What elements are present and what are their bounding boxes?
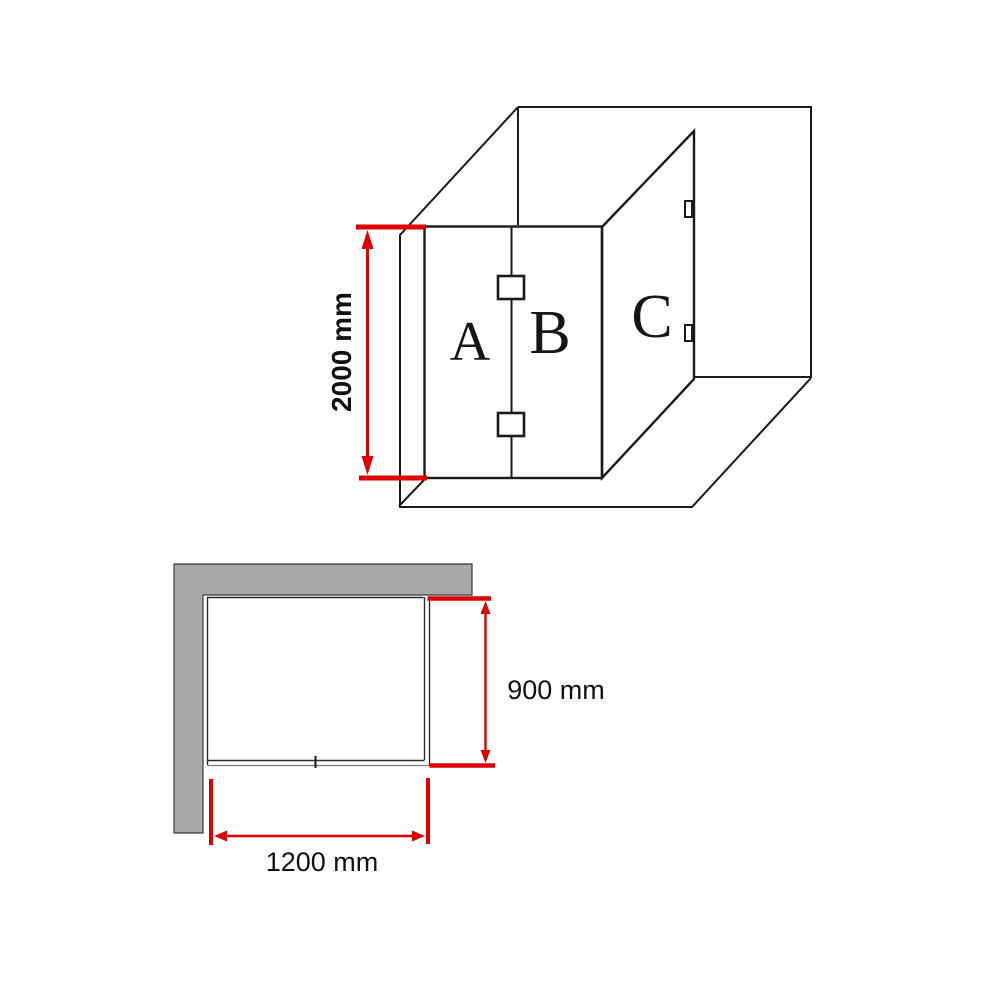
plan-glass-side-panel	[425, 597, 430, 765]
width-dimension-label: 1200 mm	[266, 847, 379, 877]
height-dimension: 2000 mm	[326, 227, 427, 478]
hinge-top	[498, 276, 524, 299]
wall-bracket-top	[685, 201, 692, 217]
depth-dimension-label: 900 mm	[507, 675, 605, 705]
arrow-up-icon	[481, 601, 491, 614]
plan-view: 900 mm 1200 mm	[174, 564, 605, 877]
shower-screen-diagram: A B C 2000 mm 900 m	[0, 0, 1000, 1000]
arrow-down-icon	[362, 456, 374, 475]
panel-label-a: A	[450, 311, 491, 373]
room-outline	[399, 107, 811, 507]
arrow-left-icon	[214, 831, 227, 842]
depth-dimension: 900 mm	[428, 599, 605, 766]
width-dimension: 1200 mm	[211, 778, 428, 877]
hinge-bottom	[498, 413, 524, 436]
arrow-down-icon	[481, 750, 491, 763]
height-dimension-label: 2000 mm	[326, 292, 357, 412]
shower-base-outline	[208, 598, 424, 766]
wall-bracket-bottom	[685, 325, 692, 341]
diagram-image: A B C 2000 mm 900 m	[0, 0, 1000, 1000]
perspective-view: A B C 2000 mm	[326, 107, 811, 507]
arrow-right-icon	[412, 831, 425, 842]
panel-label-c: C	[631, 283, 672, 351]
panel-label-b: B	[529, 299, 570, 367]
arrow-up-icon	[362, 230, 374, 249]
